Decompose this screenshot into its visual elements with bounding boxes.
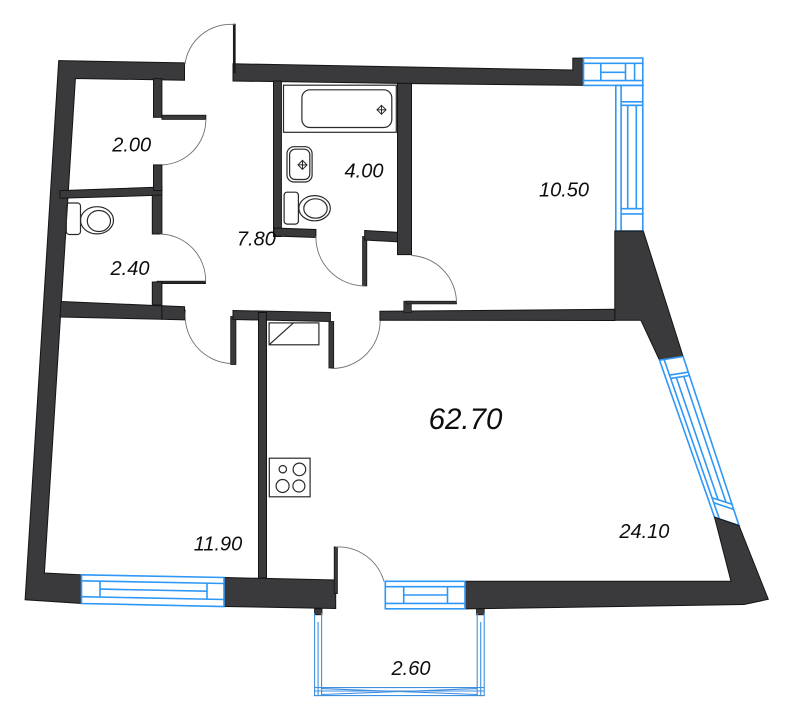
svg-text:7.80: 7.80 xyxy=(237,229,276,251)
svg-text:4.00: 4.00 xyxy=(345,160,384,182)
svg-text:2.60: 2.60 xyxy=(391,658,431,680)
svg-text:62.70: 62.70 xyxy=(429,403,503,436)
svg-text:24.10: 24.10 xyxy=(618,521,669,543)
svg-text:2.00: 2.00 xyxy=(111,135,151,157)
svg-text:11.90: 11.90 xyxy=(194,533,243,555)
svg-text:2.40: 2.40 xyxy=(110,258,150,280)
svg-text:10.50: 10.50 xyxy=(539,179,589,201)
